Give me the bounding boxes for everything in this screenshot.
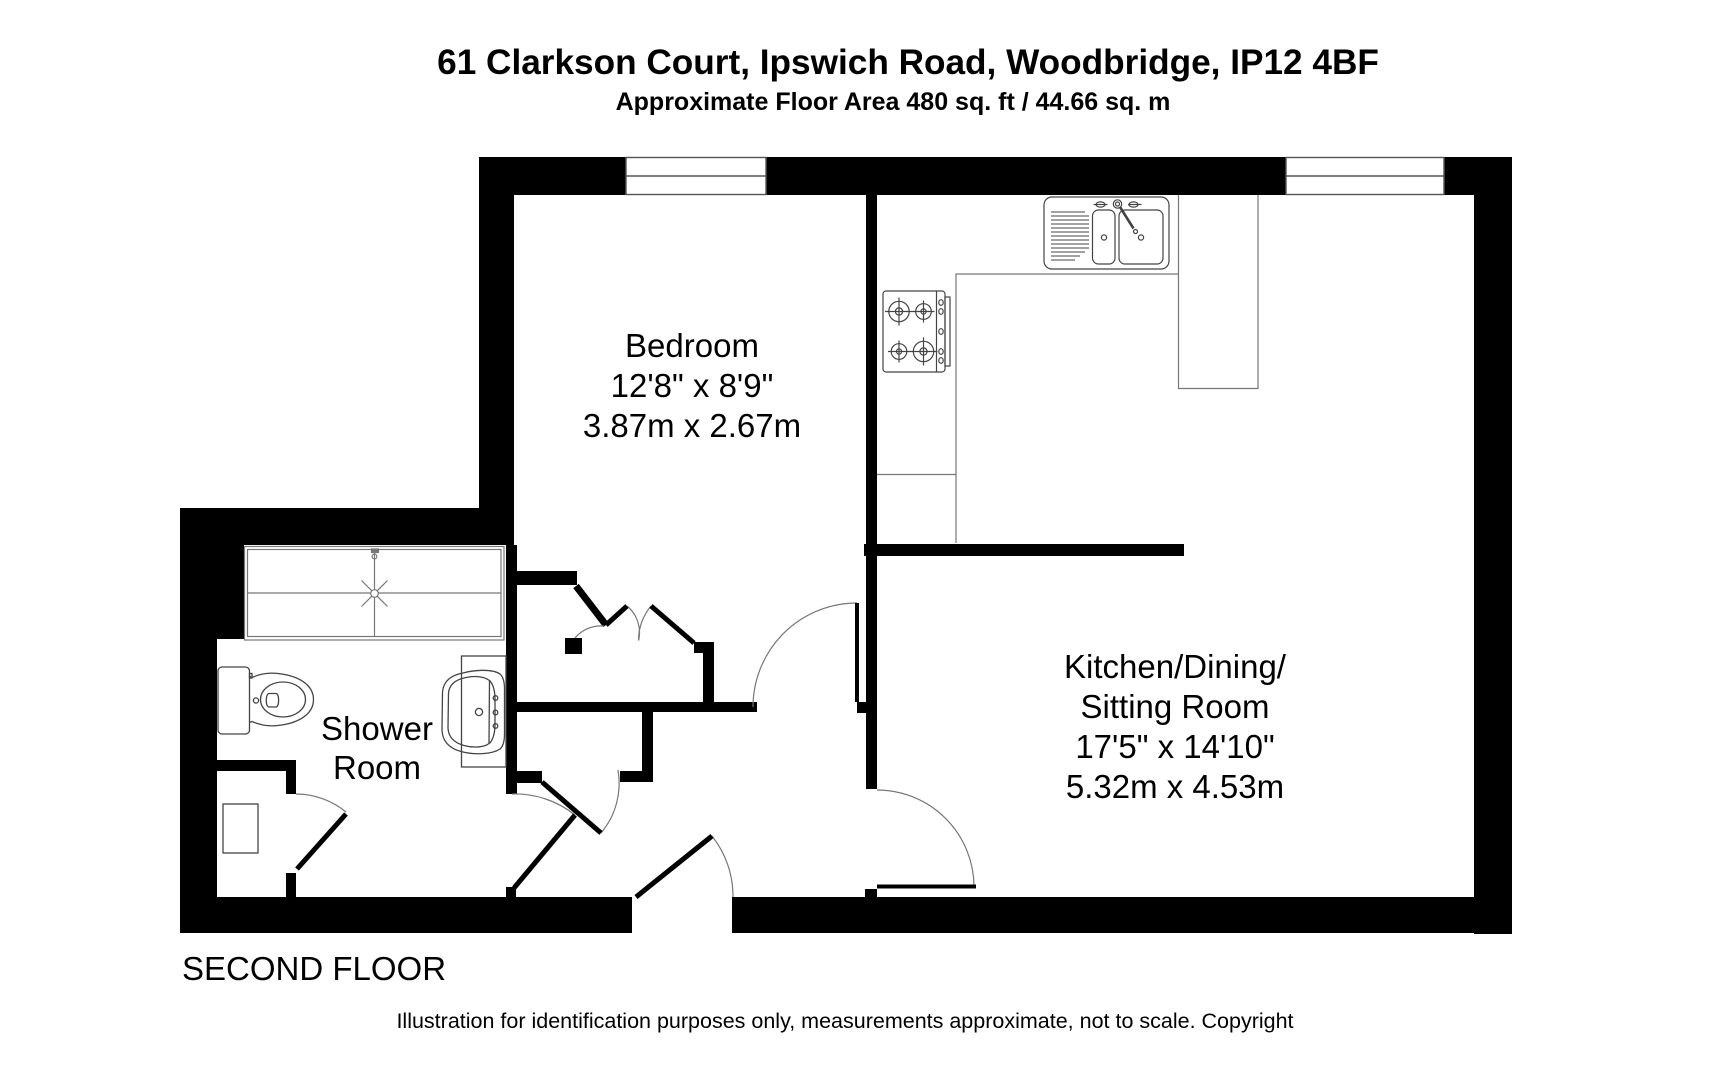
- svg-text:12'8" x 8'9": 12'8" x 8'9": [611, 367, 774, 404]
- svg-text:Bedroom: Bedroom: [625, 327, 759, 364]
- svg-text:17'5" x 14'10": 17'5" x 14'10": [1075, 728, 1274, 765]
- svg-text:SECOND FLOOR: SECOND FLOOR: [182, 950, 446, 987]
- svg-text:Illustration for identificatio: Illustration for identification purposes…: [396, 1009, 1293, 1033]
- svg-text:Sitting Room: Sitting Room: [1081, 688, 1270, 725]
- svg-text:3.87m x 2.67m: 3.87m x 2.67m: [583, 407, 801, 444]
- svg-text:Kitchen/Dining/: Kitchen/Dining/: [1064, 648, 1287, 685]
- svg-text:Approximate Floor Area 480 sq.: Approximate Floor Area 480 sq. ft / 44.6…: [616, 88, 1171, 116]
- svg-text:5.32m x 4.53m: 5.32m x 4.53m: [1066, 768, 1284, 805]
- svg-text:Room: Room: [333, 749, 421, 786]
- svg-text:61 Clarkson Court, Ipswich Roa: 61 Clarkson Court, Ipswich Road, Woodbri…: [437, 43, 1379, 82]
- svg-text:Shower: Shower: [321, 710, 433, 747]
